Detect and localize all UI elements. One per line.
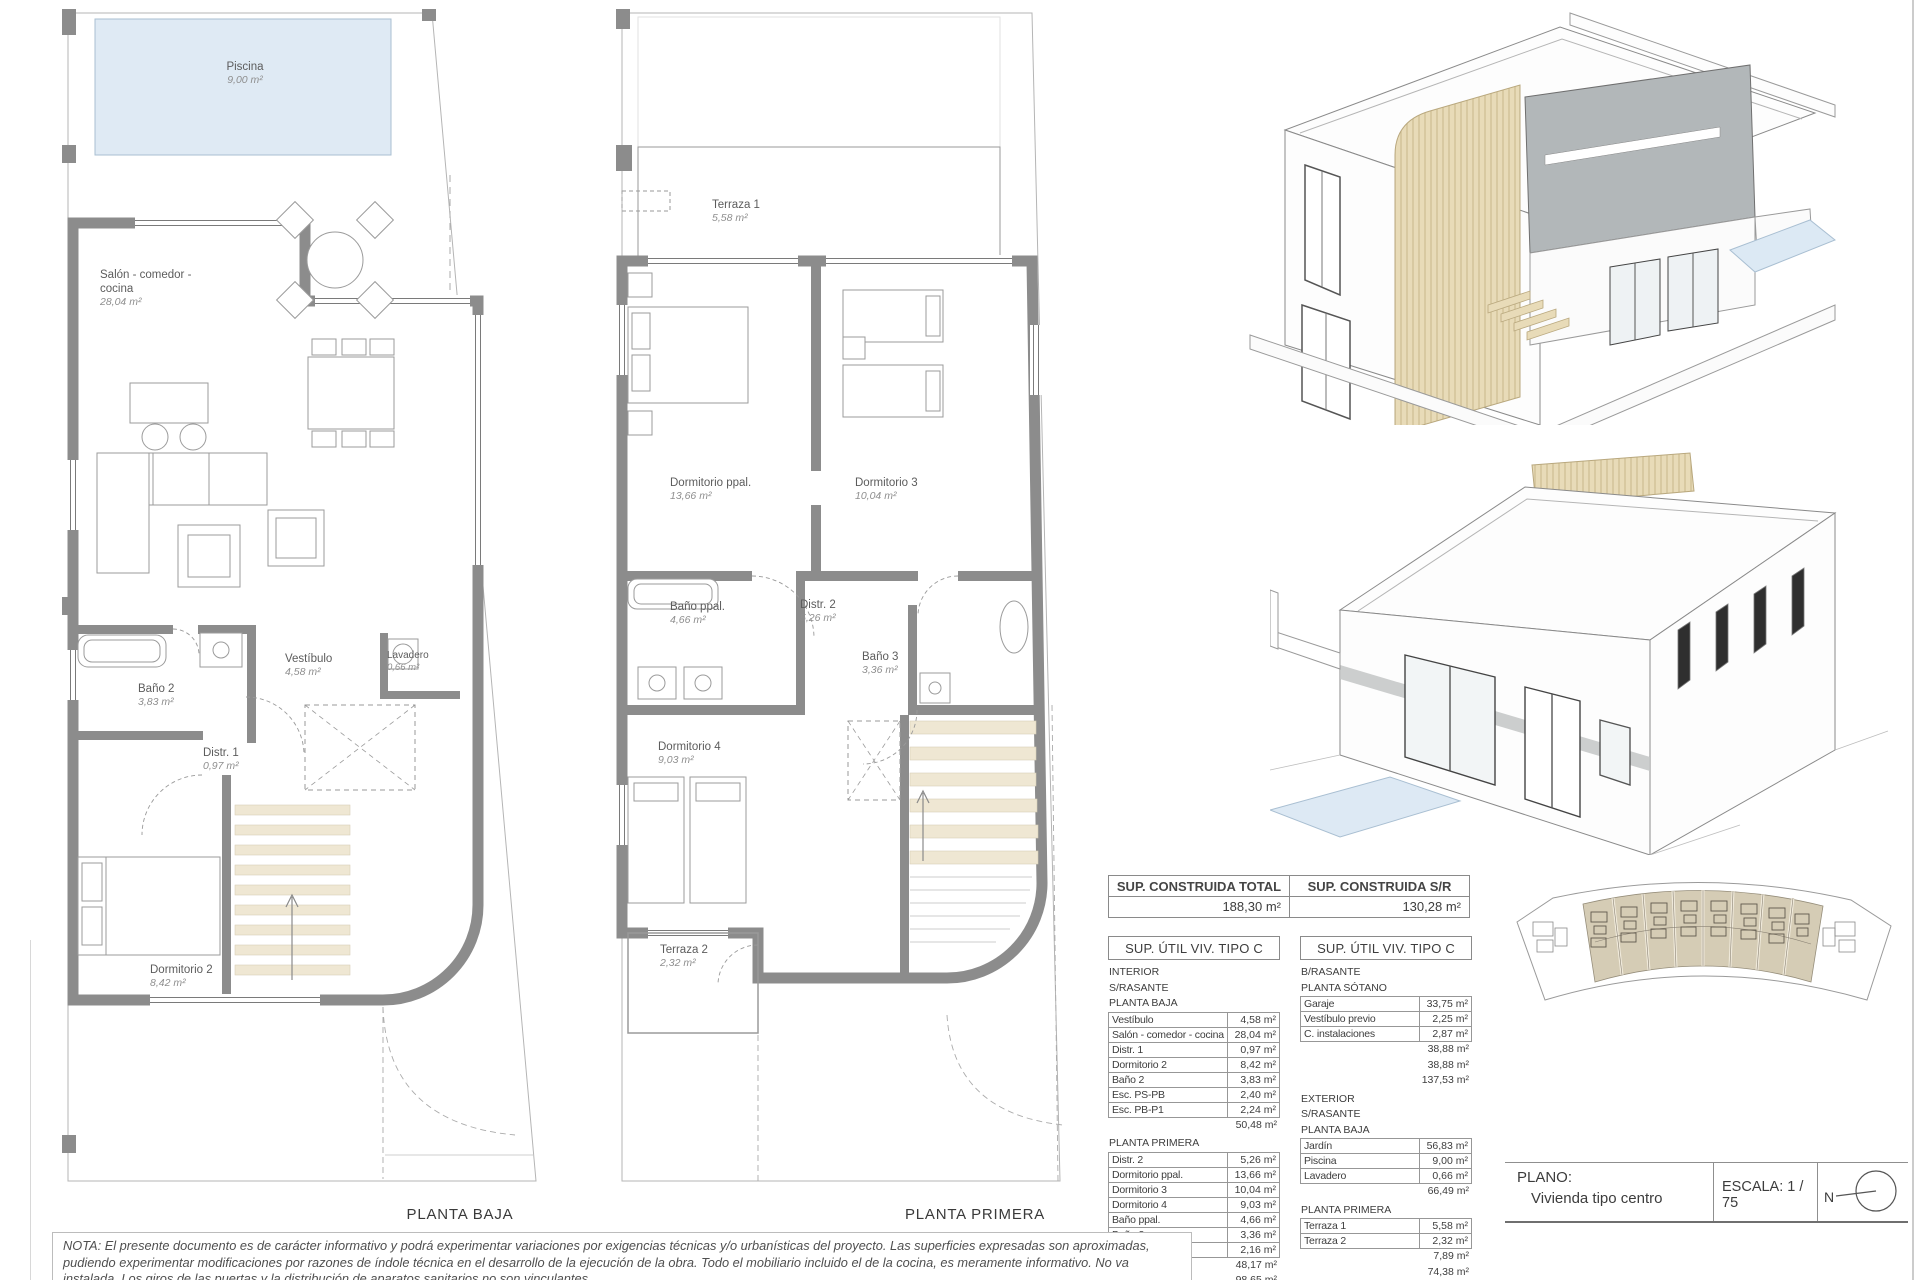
table-header-row: SUP. CONSTRUIDA TOTAL SUP. CONSTRUIDA S/… xyxy=(1109,876,1469,896)
row-value: 10,04 m² xyxy=(1227,1183,1279,1197)
north-compass-icon: N xyxy=(1818,1163,1908,1221)
room-label-distr1: Distr. 1 0,97 m² xyxy=(203,746,273,773)
disclaimer-note: NOTA: El presente documento es de caráct… xyxy=(52,1232,1192,1280)
room-label-bano-ppal: Baño ppal. 4,66 m² xyxy=(670,600,760,627)
room-name: Terraza 2 xyxy=(660,943,750,957)
escala-cell: ESCALA: 1 / 75 xyxy=(1713,1163,1818,1221)
row-label: Esc. PS-PB xyxy=(1109,1088,1227,1102)
room-area: 9,00 m² xyxy=(200,74,290,87)
room-area: 0,66 m² xyxy=(387,662,439,674)
room-label-dormitorio3: Dormitorio 3 10,04 m² xyxy=(855,476,965,503)
section-heading: S/RASANTE xyxy=(1108,981,1280,997)
room-name: Baño 3 xyxy=(862,650,932,664)
plan-title-planta-primera: PLANTA PRIMERA xyxy=(835,1206,1115,1223)
table-row: Jardín56,83 m² xyxy=(1301,1139,1471,1154)
room-name: Baño ppal. xyxy=(670,600,760,614)
plano-label: PLANO: xyxy=(1517,1169,1572,1186)
row-label: Terraza 1 xyxy=(1301,1219,1419,1233)
row-label: Vestíbulo previo xyxy=(1301,1012,1419,1026)
row-label: Terraza 2 xyxy=(1301,1234,1419,1248)
room-area: 9,03 m² xyxy=(658,754,768,767)
table-row: Garaje33,75 m² xyxy=(1301,997,1471,1012)
subtotal-value: 7,89 m² xyxy=(1300,1249,1472,1265)
built-total-value: 188,30 m² xyxy=(1109,896,1289,917)
pool xyxy=(95,19,391,155)
room-name: Salón - comedor - cocina xyxy=(100,268,218,296)
section-heading: EXTERIOR xyxy=(1300,1092,1472,1108)
row-value: 4,58 m² xyxy=(1227,1013,1279,1027)
axonometric-view-rear xyxy=(1270,425,1890,855)
row-value: 3,83 m² xyxy=(1227,1073,1279,1087)
room-area: 2,32 m² xyxy=(660,957,750,970)
row-value: 8,42 m² xyxy=(1227,1058,1279,1072)
row-value: 9,03 m² xyxy=(1227,1198,1279,1212)
table-row: Distr. 10,97 m² xyxy=(1109,1043,1279,1058)
driveway-dashed xyxy=(383,1007,533,1179)
axonometric-view-front xyxy=(1190,5,1840,425)
section-heading: INTERIOR xyxy=(1108,965,1280,981)
room-label-dormitorio2: Dormitorio 2 8,42 m² xyxy=(150,963,260,990)
sheet-border-left xyxy=(30,940,31,1280)
site-key-plan xyxy=(1505,870,1900,1030)
room-name: Dormitorio 4 xyxy=(658,740,768,754)
table-row: Esc. PS-PB2,40 m² xyxy=(1109,1088,1279,1103)
architectural-plan-sheet: Piscina 9,00 m² Salón - comedor - cocina… xyxy=(0,0,1920,1280)
table-header: SUP. ÚTIL VIV. TIPO C xyxy=(1300,936,1472,960)
built-area-table: SUP. CONSTRUIDA TOTAL SUP. CONSTRUIDA S/… xyxy=(1108,875,1470,918)
room-name: Lavadero xyxy=(387,650,439,662)
pool-3d xyxy=(1270,777,1460,837)
section-heading: PLANTA SÓTANO xyxy=(1300,981,1472,997)
table-row: Terraza 22,32 m² xyxy=(1301,1234,1471,1248)
room-area: 4,58 m² xyxy=(285,666,375,679)
timber-slat-wall xyxy=(1395,85,1520,425)
table-rows: Terraza 15,58 m²Terraza 22,32 m² xyxy=(1300,1218,1472,1249)
room-label-piscina: Piscina 9,00 m² xyxy=(200,60,290,87)
row-label: Jardín xyxy=(1301,1139,1419,1153)
row-value: 2,32 m² xyxy=(1419,1234,1471,1248)
section-heading: PLANTA PRIMERA xyxy=(1108,1136,1280,1152)
room-name: Vestíbulo xyxy=(285,652,375,666)
table-row: Esc. PB-P12,24 m² xyxy=(1109,1103,1279,1117)
row-value: 33,75 m² xyxy=(1419,997,1471,1011)
row-label: Esc. PB-P1 xyxy=(1109,1103,1227,1117)
built-sr-value: 130,28 m² xyxy=(1289,896,1469,917)
row-value: 0,66 m² xyxy=(1419,1169,1471,1183)
row-label: Garaje xyxy=(1301,997,1419,1011)
section-heading: PLANTA PRIMERA xyxy=(1300,1203,1472,1219)
table-row: Dormitorio ppal.13,66 m² xyxy=(1109,1168,1279,1183)
north-letter: N xyxy=(1824,1189,1834,1205)
table-row: Vestíbulo4,58 m² xyxy=(1109,1013,1279,1028)
table-rows: Garaje33,75 m²Vestíbulo previo2,25 m²C. … xyxy=(1300,996,1472,1042)
row-label: Distr. 2 xyxy=(1109,1153,1227,1167)
room-area: 28,04 m² xyxy=(100,296,218,309)
row-label: Lavadero xyxy=(1301,1169,1419,1183)
room-name: Dormitorio ppal. xyxy=(670,476,800,490)
row-value: 5,58 m² xyxy=(1419,1219,1471,1233)
table-row: Vestíbulo previo2,25 m² xyxy=(1301,1012,1471,1027)
room-label-terraza2: Terraza 2 2,32 m² xyxy=(660,943,750,970)
subtotal-value: 50,48 m² xyxy=(1108,1118,1280,1134)
room-name: Dormitorio 3 xyxy=(855,476,965,490)
row-label: Dormitorio ppal. xyxy=(1109,1168,1227,1182)
row-value: 3,36 m² xyxy=(1227,1228,1279,1242)
room-name: Distr. 1 xyxy=(203,746,273,760)
room-name: Distr. 2 xyxy=(800,598,870,612)
room-label-dormitorio4: Dormitorio 4 9,03 m² xyxy=(658,740,768,767)
row-value: 2,87 m² xyxy=(1419,1027,1471,1041)
room-area: 3,36 m² xyxy=(862,664,932,677)
room-area: 10,04 m² xyxy=(855,490,965,503)
subtotal-value: 137,53 m² xyxy=(1300,1073,1472,1089)
subtotal-value: 38,88 m² xyxy=(1300,1042,1472,1058)
table-value-row: 188,30 m² 130,28 m² xyxy=(1109,896,1469,917)
room-label-dormitorio-ppal: Dormitorio ppal. 13,66 m² xyxy=(670,476,800,503)
row-value: 2,24 m² xyxy=(1227,1103,1279,1117)
row-value: 56,83 m² xyxy=(1419,1139,1471,1153)
subtotal-value: 66,49 m² xyxy=(1300,1184,1472,1200)
row-value: 2,40 m² xyxy=(1227,1088,1279,1102)
table-row: Dormitorio 28,42 m² xyxy=(1109,1058,1279,1073)
terrace-1 xyxy=(622,17,1000,261)
room-name: Piscina xyxy=(200,60,290,74)
useful-area-table-exterior: SUP. ÚTIL VIV. TIPO CB/RASANTEPLANTA SÓT… xyxy=(1300,936,1472,1280)
row-value: 2,25 m² xyxy=(1419,1012,1471,1026)
section-heading: S/RASANTE xyxy=(1300,1107,1472,1123)
row-value: 13,66 m² xyxy=(1227,1168,1279,1182)
room-area: 13,66 m² xyxy=(670,490,800,503)
table-row: C. instalaciones2,87 m² xyxy=(1301,1027,1471,1041)
room-label-distr2: Distr. 2 5,26 m² xyxy=(800,598,870,625)
plano-cell: PLANO: Vivienda tipo centro xyxy=(1505,1163,1713,1221)
subtotal-value: 38,88 m² xyxy=(1300,1058,1472,1074)
row-label: Baño 2 xyxy=(1109,1073,1227,1087)
table-row: Salón - comedor - cocina28,04 m² xyxy=(1109,1028,1279,1043)
row-value: 9,00 m² xyxy=(1419,1154,1471,1168)
row-label: Dormitorio 3 xyxy=(1109,1183,1227,1197)
room-area: 5,58 m² xyxy=(712,212,802,225)
section-heading: PLANTA BAJA xyxy=(1300,1123,1472,1139)
built-sr-header: SUP. CONSTRUIDA S/R xyxy=(1289,876,1469,896)
table-row: Dormitorio 310,04 m² xyxy=(1109,1183,1279,1198)
section-heading: PLANTA BAJA xyxy=(1108,996,1280,1012)
row-label: Salón - comedor - cocina xyxy=(1109,1028,1227,1042)
room-area: 0,97 m² xyxy=(203,760,273,773)
room-area: 8,42 m² xyxy=(150,977,260,990)
table-row: Terraza 15,58 m² xyxy=(1301,1219,1471,1234)
room-name: Baño 2 xyxy=(138,682,208,696)
table-header: SUP. ÚTIL VIV. TIPO C xyxy=(1108,936,1280,960)
row-value: 2,16 m² xyxy=(1227,1243,1279,1257)
room-label-lavadero: Lavadero 0,66 m² xyxy=(387,650,439,674)
room-area: 3,83 m² xyxy=(138,696,208,709)
table-rows: Vestíbulo4,58 m²Salón - comedor - cocina… xyxy=(1108,1012,1280,1118)
row-value: 0,97 m² xyxy=(1227,1043,1279,1057)
balcony xyxy=(1270,590,1340,669)
row-label: Baño ppal. xyxy=(1109,1213,1227,1227)
table-row: Baño 23,83 m² xyxy=(1109,1073,1279,1088)
room-name: Dormitorio 2 xyxy=(150,963,260,977)
room-area: 4,66 m² xyxy=(670,614,760,627)
table-row: Lavadero0,66 m² xyxy=(1301,1169,1471,1183)
room-label-bano2: Baño 2 3,83 m² xyxy=(138,682,208,709)
row-label: Dormitorio 4 xyxy=(1109,1198,1227,1212)
plano-value: Vivienda tipo centro xyxy=(1517,1186,1713,1207)
room-label-terraza1: Terraza 1 5,58 m² xyxy=(712,198,802,225)
table-row: Piscina9,00 m² xyxy=(1301,1154,1471,1169)
row-label: Piscina xyxy=(1301,1154,1419,1168)
room-name: Terraza 1 xyxy=(712,198,802,212)
subtotal-value: 74,38 m² xyxy=(1300,1265,1472,1280)
room-label-bano3: Baño 3 3,36 m² xyxy=(862,650,932,677)
table-row: Distr. 25,26 m² xyxy=(1109,1153,1279,1168)
row-value: 28,04 m² xyxy=(1227,1028,1279,1042)
room-label-salon: Salón - comedor - cocina 28,04 m² xyxy=(100,268,218,309)
row-label: Dormitorio 2 xyxy=(1109,1058,1227,1072)
section-heading: B/RASANTE xyxy=(1300,965,1472,981)
title-block: PLANO: Vivienda tipo centro ESCALA: 1 / … xyxy=(1505,1162,1908,1223)
row-value: 4,66 m² xyxy=(1227,1213,1279,1227)
built-total-header: SUP. CONSTRUIDA TOTAL xyxy=(1109,876,1289,896)
plan-title-planta-baja: PLANTA BAJA xyxy=(320,1206,600,1223)
sheet-border-right xyxy=(1912,0,1914,1280)
row-label: C. instalaciones xyxy=(1301,1027,1419,1041)
table-row: Dormitorio 49,03 m² xyxy=(1109,1198,1279,1213)
room-area: 5,26 m² xyxy=(800,612,870,625)
north-cell: N xyxy=(1818,1163,1908,1221)
table-rows: Jardín56,83 m²Piscina9,00 m²Lavadero0,66… xyxy=(1300,1138,1472,1184)
planta-baja-drawing xyxy=(50,5,540,1190)
useful-area-table-interior: SUP. ÚTIL VIV. TIPO CINTERIORS/RASANTEPL… xyxy=(1108,936,1280,1280)
row-value: 5,26 m² xyxy=(1227,1153,1279,1167)
table-row: Baño ppal.4,66 m² xyxy=(1109,1213,1279,1228)
room-label-vestibulo: Vestíbulo 4,58 m² xyxy=(285,652,375,679)
row-label: Vestíbulo xyxy=(1109,1013,1227,1027)
row-label: Distr. 1 xyxy=(1109,1043,1227,1057)
